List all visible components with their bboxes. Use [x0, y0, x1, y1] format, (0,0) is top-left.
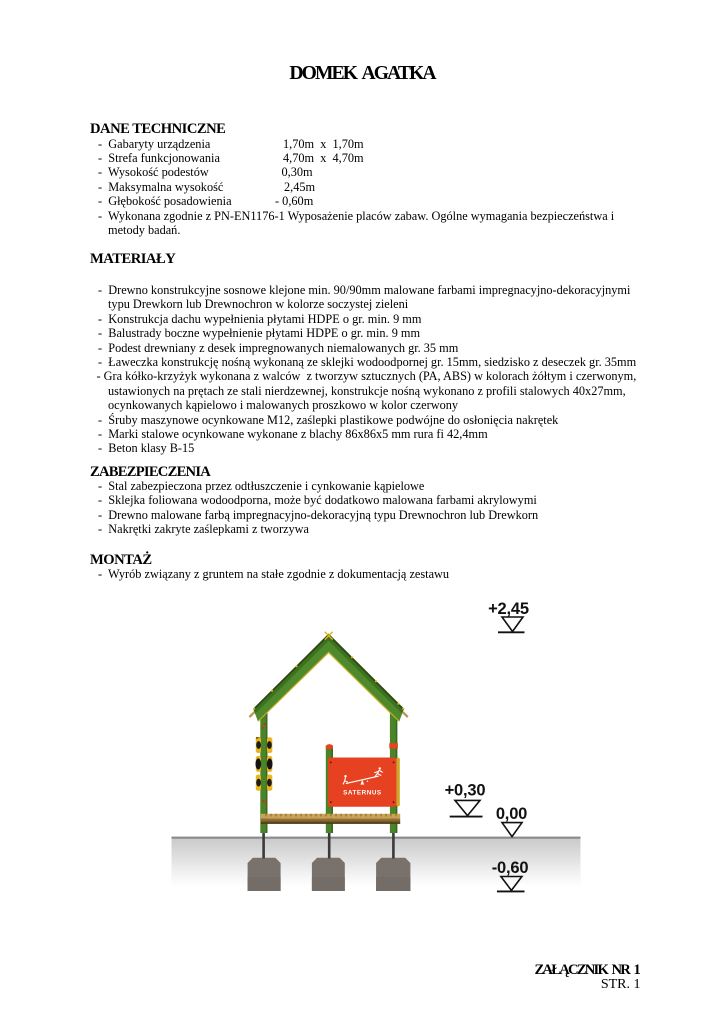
- svg-text:+0,30: +0,30: [445, 782, 486, 800]
- svg-text:0,00: 0,00: [496, 805, 527, 823]
- svg-text:-0,60: -0,60: [492, 859, 529, 877]
- svg-text:SATERNUS: SATERNUS: [343, 790, 382, 797]
- svg-text:+2,45: +2,45: [488, 600, 529, 618]
